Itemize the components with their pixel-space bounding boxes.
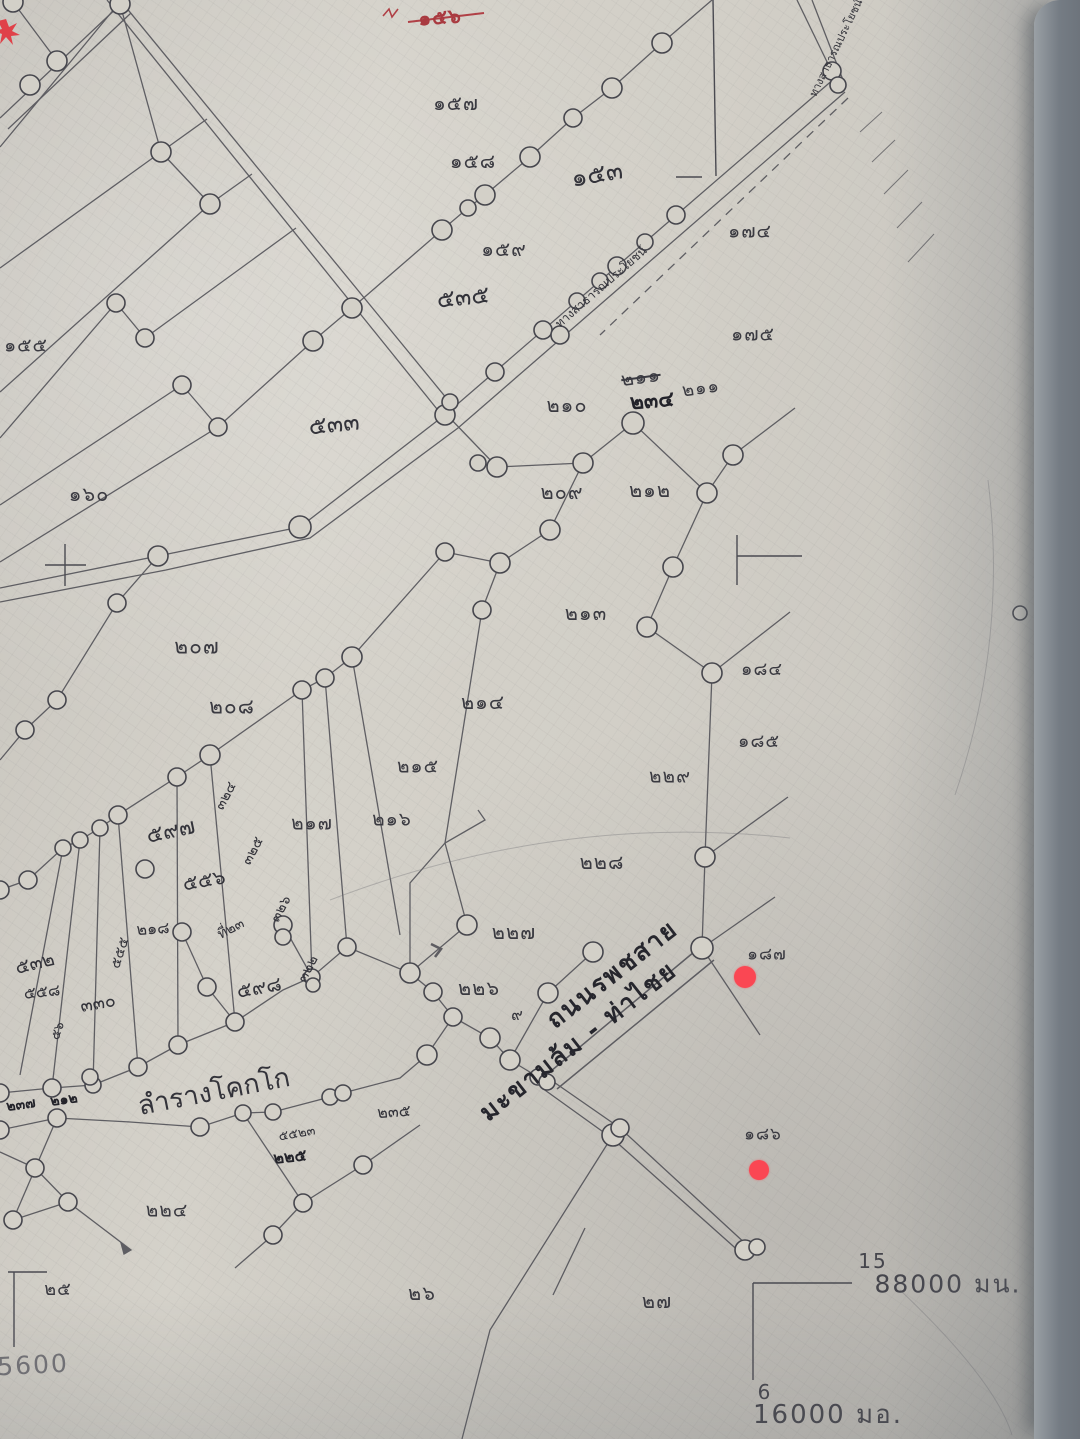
parcel-160: ๑๖๐ bbox=[69, 484, 110, 504]
parcel-175: ๑๗๕ bbox=[731, 326, 775, 345]
parcel-207: ๒๐๗ bbox=[174, 637, 219, 658]
parcel-213: ๒๑๓ bbox=[565, 603, 608, 623]
grid-reference-marks bbox=[8, 0, 852, 1380]
parcel-211-struck: ๒๑๑ bbox=[620, 366, 662, 390]
red-marker-dot bbox=[734, 966, 756, 988]
red-annotations bbox=[0, 9, 484, 45]
parcel-159: ๑๕๙ bbox=[481, 239, 526, 259]
map-drawing bbox=[0, 0, 1080, 1439]
hand-225: ๒๒๕ bbox=[273, 1147, 308, 1166]
parcel-229: ๒๒๙ bbox=[649, 768, 691, 787]
hand-9-mark: ๙ bbox=[511, 1007, 523, 1023]
page-edge-strip bbox=[1034, 0, 1080, 1439]
hand-212b: ๒๑๒ bbox=[49, 1091, 78, 1109]
parcel-210: ๒๑๐ bbox=[546, 395, 587, 415]
parcel-234-bold: ๒๓๔ bbox=[629, 389, 675, 414]
grid-east-index: 6 bbox=[758, 1382, 773, 1402]
parcel-228: ๒๒๘ bbox=[580, 852, 625, 872]
parcel-25: ๒๕ bbox=[44, 1281, 72, 1299]
hand-535: ๕๓๕ bbox=[436, 282, 491, 311]
parcel-184: ๑๘๔ bbox=[741, 661, 783, 679]
red-scribble bbox=[383, 9, 398, 17]
parcel-157: ๑๕๗ bbox=[433, 93, 479, 113]
red-star bbox=[0, 19, 20, 45]
cadastral-map-photo: ๑๕๖๑๕๗๑๕๘๑๕๙๑๗๔๑๗๕๑๕๕๑๖๐๑๕๓๕๓๕๕๓๓๒๑๐๒๑๑๒… bbox=[0, 0, 1080, 1439]
grid-north-index: 15 bbox=[858, 1251, 887, 1271]
hand-218: ๒๑๘ bbox=[136, 920, 170, 938]
parcel-158: ๑๕๘ bbox=[450, 151, 496, 171]
survey-vertex-markers bbox=[0, 0, 1027, 1260]
parcel-187: ๑๘๗ bbox=[747, 947, 787, 964]
parcel-224: ๒๒๔ bbox=[146, 1202, 188, 1221]
parcel-209: ๒๐๙ bbox=[540, 482, 583, 502]
parcel-174: ๑๗๔ bbox=[728, 223, 772, 242]
parcel-216: ๒๑๖ bbox=[372, 811, 412, 830]
hand-237: ๒๓๗ bbox=[6, 1096, 37, 1114]
parcel-185: ๑๘๕ bbox=[738, 733, 780, 751]
parcel-208: ๒๐๘ bbox=[209, 697, 255, 718]
parcel-217: ๒๑๗ bbox=[291, 815, 333, 834]
grid-left-partial: 5600 bbox=[0, 1351, 69, 1380]
parcel-26: ๒๖ bbox=[408, 1283, 436, 1303]
parcel-155: ๑๕๕ bbox=[4, 337, 48, 356]
parcel-215: ๒๑๕ bbox=[397, 758, 439, 777]
parcel-212: ๒๑๒ bbox=[629, 480, 671, 500]
parcel-226: ๒๒๖ bbox=[458, 978, 500, 998]
grid-north-value: 88000 มน. bbox=[875, 1272, 1022, 1297]
parcel-227: ๒๒๗ bbox=[492, 922, 536, 942]
hand-235: ๒๓๕ bbox=[377, 1103, 412, 1121]
parcel-214: ๒๑๔ bbox=[461, 692, 505, 712]
grid-east-value: 16000 มอ. bbox=[753, 1402, 903, 1428]
parcel-27: ๒๗ bbox=[642, 1291, 672, 1311]
parcel-156-red: ๑๕๖ bbox=[418, 6, 463, 29]
hand-558: ๕๕๘ bbox=[23, 982, 61, 1002]
red-marker-dot bbox=[749, 1160, 769, 1180]
parcel-186: ๑๘๖ bbox=[744, 1127, 782, 1144]
hand-533: ๕๓๓ bbox=[307, 409, 360, 438]
parcel-211b: ๒๑๑ bbox=[681, 377, 721, 400]
